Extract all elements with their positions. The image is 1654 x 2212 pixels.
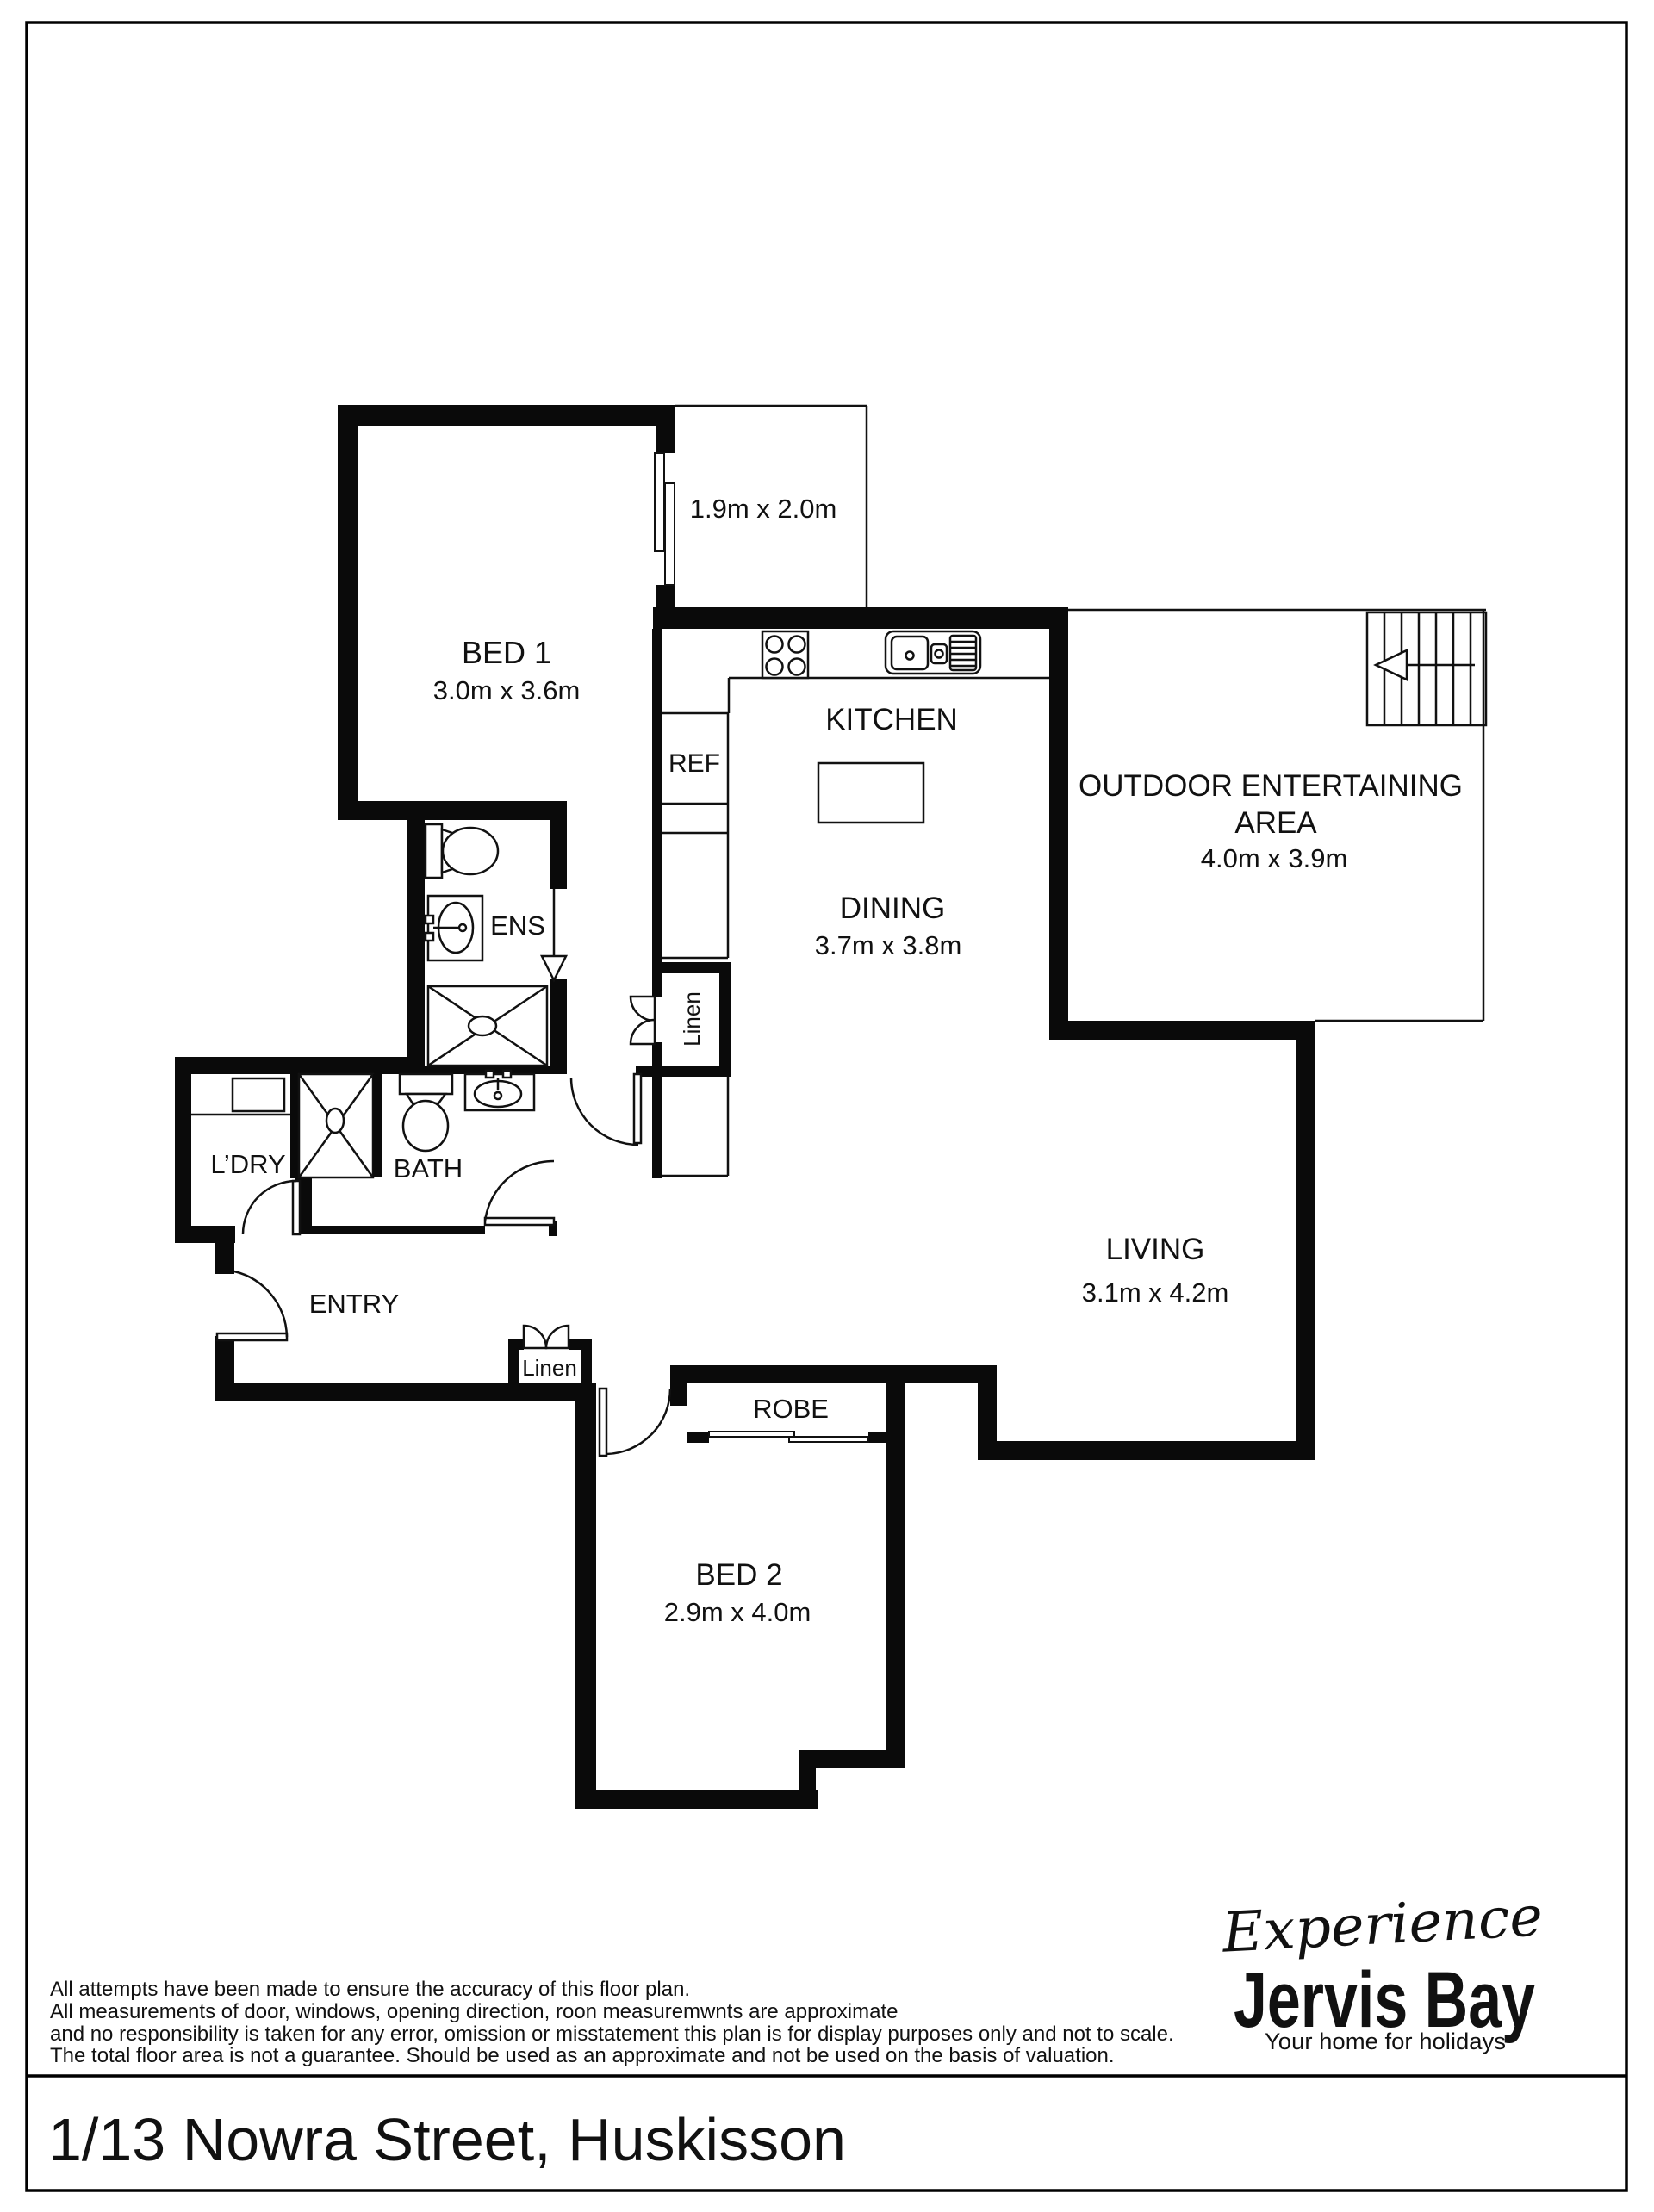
living-label: LIVING [1106,1233,1205,1266]
ens-label: ENS [490,910,545,941]
ref-label: REF [668,749,720,778]
living-dims: 3.1m x 4.2m [1082,1277,1229,1308]
robe-label: ROBE [753,1394,829,1424]
address-title: 1/13 Nowra Street, Huskisson [48,2106,846,2173]
ldry-label: L’DRY [210,1149,285,1179]
kitchen-island-icon [818,763,923,823]
floor-plan-canvas: BED 1 3.0m x 3.6m 1.9m x 2.0m KITCHEN RE… [0,0,1654,2212]
floor-plan-page: BED 1 3.0m x 3.6m 1.9m x 2.0m KITCHEN RE… [0,0,1654,2212]
bath-toilet-icon [400,1074,452,1151]
ens-toilet-icon [426,824,498,878]
bed2-label: BED 2 [695,1558,782,1592]
bed2-dims: 2.9m x 4.0m [664,1597,811,1627]
laundry-tub-icon [233,1078,284,1111]
bath-label: BATH [394,1153,463,1184]
bed1-dims: 3.0m x 3.6m [433,675,581,705]
disclaimer-line-3: and no responsibility is taken for any e… [50,2022,1174,2046]
agency-logo: Experience Jervis Bay Your home for holi… [1220,1885,1544,2054]
outdoor-label2: AREA [1234,806,1317,840]
store-dims: 1.9m x 2.0m [690,494,837,524]
dining-dims: 3.7m x 3.8m [815,930,962,960]
disclaimer-line-1: All attempts have been made to ensure th… [50,1978,690,2001]
ens-vanity-basin-icon [426,896,482,960]
kitchen-label: KITCHEN [825,703,958,736]
dining-label: DINING [840,892,946,925]
logo-tagline-text: Your home for holidays [1265,2029,1506,2054]
linen-entry-label: Linen [522,1355,577,1381]
outdoor-label: OUTDOOR ENTERTAINING [1079,769,1463,803]
linen-hall-label: Linen [679,991,705,1047]
outdoor-dims: 4.0m x 3.9m [1201,843,1348,873]
window-icon [654,453,677,585]
bath-vanity-basin-icon [465,1071,534,1110]
disclaimer-line-4: The total floor area is not a guarantee.… [50,2044,1115,2067]
entry-label: ENTRY [309,1289,400,1319]
disclaimer-line-2: All measurements of door, windows, openi… [50,2000,899,2023]
bed1-label: BED 1 [462,635,551,670]
double-sink-icon [886,631,980,674]
stove-cooktop-icon [762,631,808,678]
